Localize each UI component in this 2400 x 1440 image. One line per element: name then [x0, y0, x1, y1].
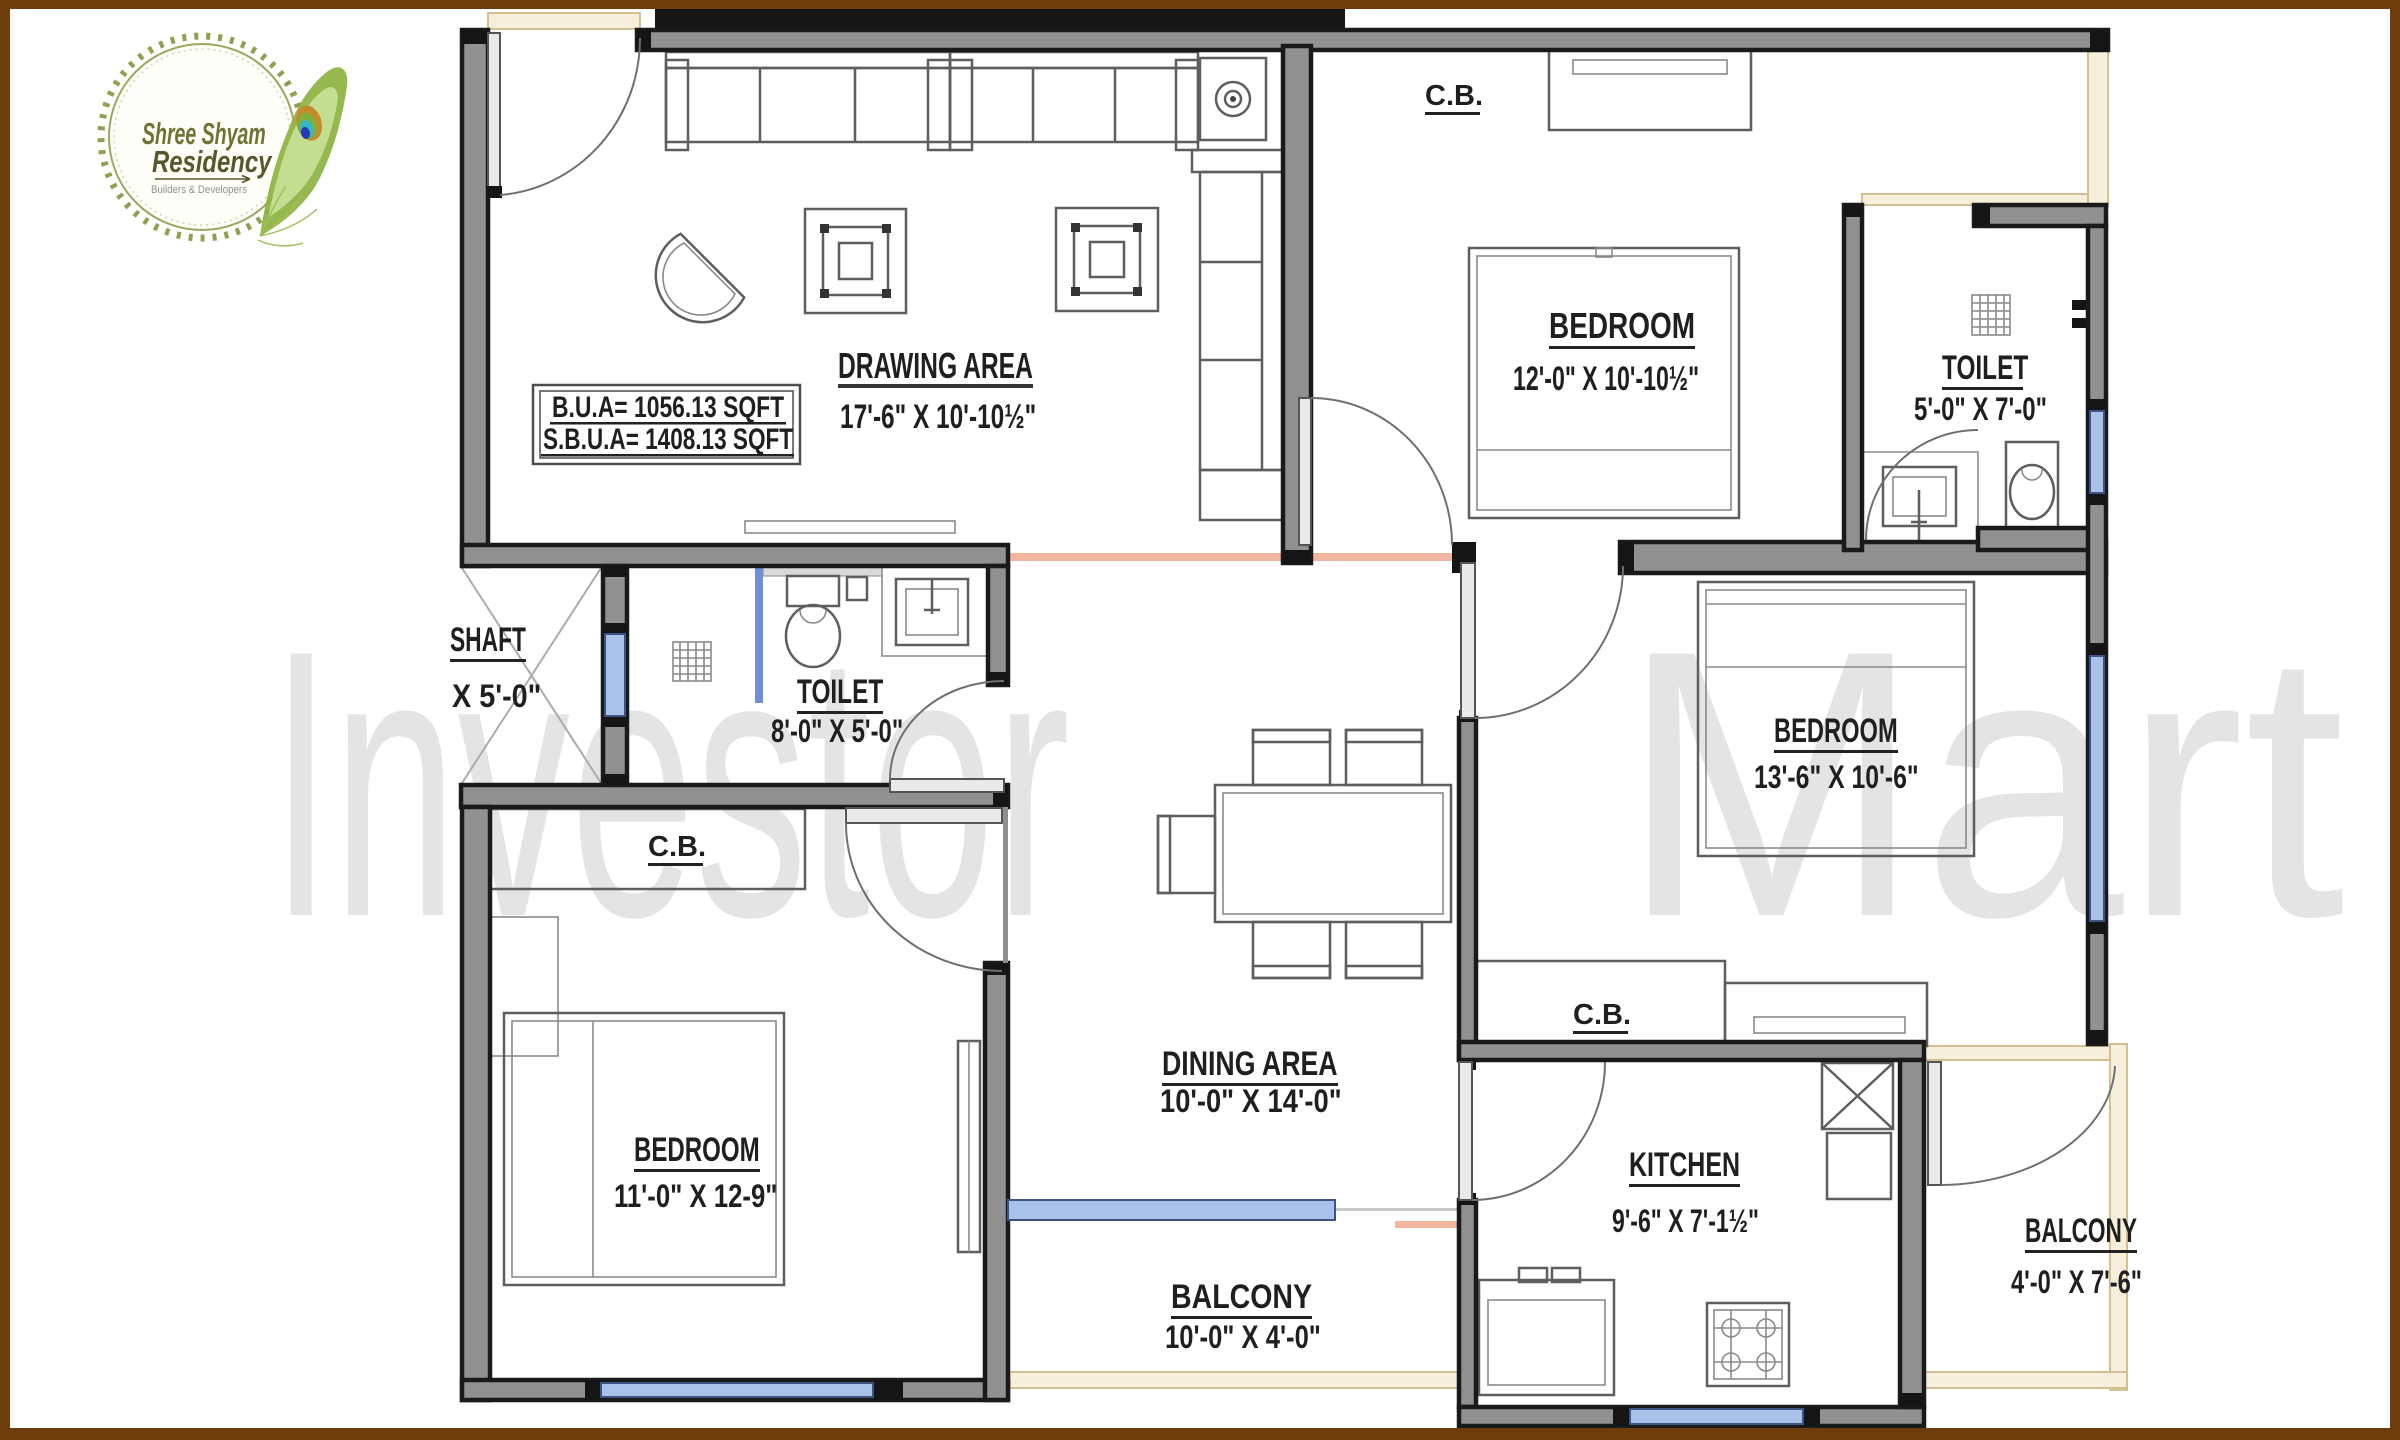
svg-text:C.B.: C.B. — [1573, 999, 1631, 1031]
svg-text:BEDROOM: BEDROOM — [1549, 306, 1695, 346]
svg-text:9'-6" X 7'-1½": 9'-6" X 7'-1½" — [1612, 1203, 1759, 1239]
svg-text:TOILET: TOILET — [1942, 349, 2028, 387]
svg-text:Mart: Mart — [1620, 571, 2346, 996]
svg-text:DRAWING AREA: DRAWING AREA — [838, 345, 1033, 386]
svg-text:10'-0" X 14'-0": 10'-0" X 14'-0" — [1160, 1084, 1342, 1119]
svg-text:TOILET: TOILET — [797, 673, 883, 711]
svg-text:BALCONY: BALCONY — [1171, 1278, 1312, 1316]
svg-text:SHAFT: SHAFT — [450, 622, 526, 660]
svg-text:17'-6" X 10'-10½": 17'-6" X 10'-10½" — [840, 398, 1036, 436]
svg-text:BEDROOM: BEDROOM — [634, 1131, 760, 1169]
svg-text:Residency: Residency — [152, 144, 273, 179]
svg-text:B.U.A= 1056.13 SQFT: B.U.A= 1056.13 SQFT — [552, 390, 784, 424]
svg-text:BALCONY: BALCONY — [2025, 1213, 2137, 1251]
svg-text:DINING AREA: DINING AREA — [1162, 1045, 1338, 1083]
svg-text:10'-0" X 4'-0": 10'-0" X 4'-0" — [1165, 1320, 1321, 1355]
svg-text:8'-0" X 5'-0": 8'-0" X 5'-0" — [771, 713, 903, 749]
svg-text:Builders & Developers: Builders & Developers — [151, 184, 247, 196]
svg-text:11'-0" X 12-9": 11'-0" X 12-9" — [614, 1179, 777, 1214]
svg-text:X 5'-0": X 5'-0" — [452, 679, 541, 715]
svg-text:5'-0" X 7'-0": 5'-0" X 7'-0" — [1914, 391, 2047, 427]
svg-text:S.B.U.A= 1408.13 SQFT: S.B.U.A= 1408.13 SQFT — [543, 422, 793, 456]
svg-text:BEDROOM: BEDROOM — [1774, 712, 1898, 750]
svg-text:4'-0" X 7'-6": 4'-0" X 7'-6" — [2011, 1265, 2142, 1300]
svg-text:C.B.: C.B. — [1425, 80, 1483, 112]
svg-text:12'-0" X 10'-10½": 12'-0" X 10'-10½" — [1513, 361, 1699, 398]
svg-text:KITCHEN: KITCHEN — [1629, 1146, 1740, 1184]
svg-text:C.B.: C.B. — [648, 831, 706, 863]
svg-text:13'-6" X 10'-6": 13'-6" X 10'-6" — [1754, 760, 1919, 796]
